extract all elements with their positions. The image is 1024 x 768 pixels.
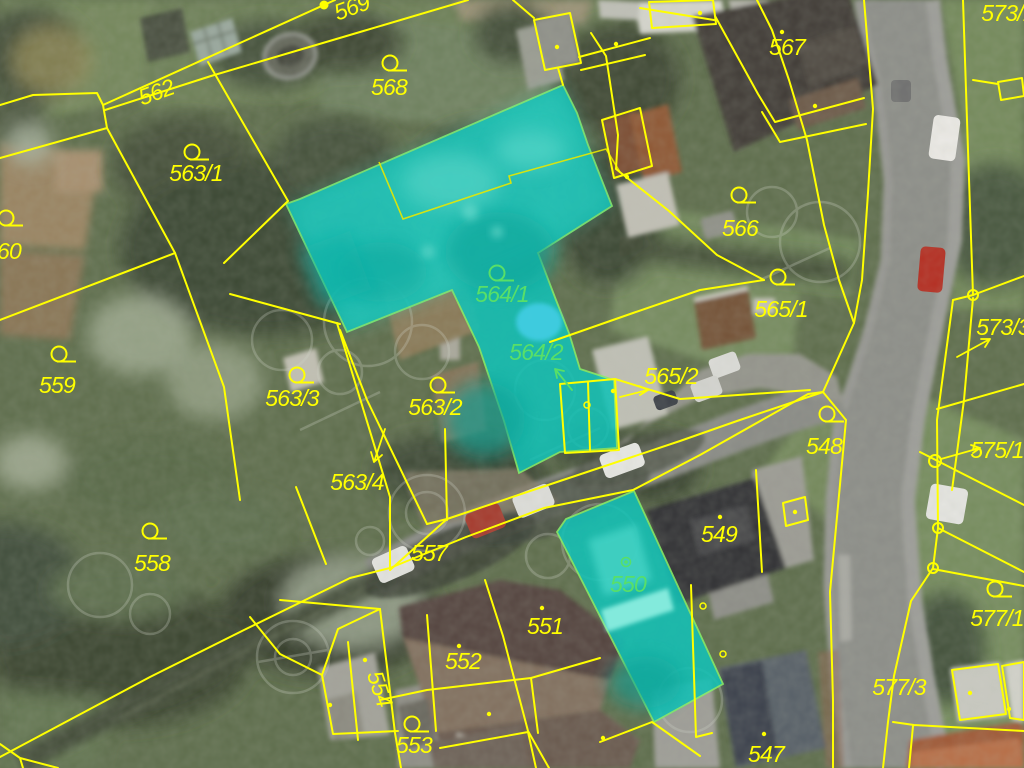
svg-text:551: 551 bbox=[527, 613, 563, 639]
svg-text:563/2: 563/2 bbox=[408, 394, 463, 420]
svg-text:548: 548 bbox=[806, 433, 843, 459]
svg-text:552: 552 bbox=[445, 648, 482, 674]
svg-text:577/3: 577/3 bbox=[872, 674, 927, 700]
svg-text:563/3: 563/3 bbox=[265, 385, 320, 411]
svg-text:557: 557 bbox=[411, 540, 449, 566]
svg-text:560: 560 bbox=[0, 238, 22, 264]
svg-text:565/2: 565/2 bbox=[644, 363, 699, 389]
svg-text:573/1: 573/1 bbox=[981, 0, 1024, 26]
svg-text:564/2: 564/2 bbox=[509, 339, 564, 365]
svg-text:575/1: 575/1 bbox=[970, 437, 1024, 463]
svg-text:564/1: 564/1 bbox=[475, 281, 529, 307]
svg-text:553: 553 bbox=[396, 732, 433, 758]
svg-text:559: 559 bbox=[39, 372, 76, 398]
svg-text:565/1: 565/1 bbox=[754, 296, 808, 322]
svg-text:547: 547 bbox=[748, 741, 786, 767]
svg-text:568: 568 bbox=[371, 74, 408, 100]
svg-text:550: 550 bbox=[610, 571, 647, 597]
svg-text:577/1: 577/1 bbox=[970, 605, 1024, 631]
svg-text:549: 549 bbox=[701, 521, 738, 547]
svg-text:563/4: 563/4 bbox=[330, 469, 384, 495]
svg-text:558: 558 bbox=[134, 550, 171, 576]
svg-text:567: 567 bbox=[769, 34, 807, 60]
svg-text:573/3: 573/3 bbox=[976, 314, 1024, 340]
svg-text:563/1: 563/1 bbox=[169, 160, 223, 186]
svg-text:566: 566 bbox=[722, 215, 759, 241]
